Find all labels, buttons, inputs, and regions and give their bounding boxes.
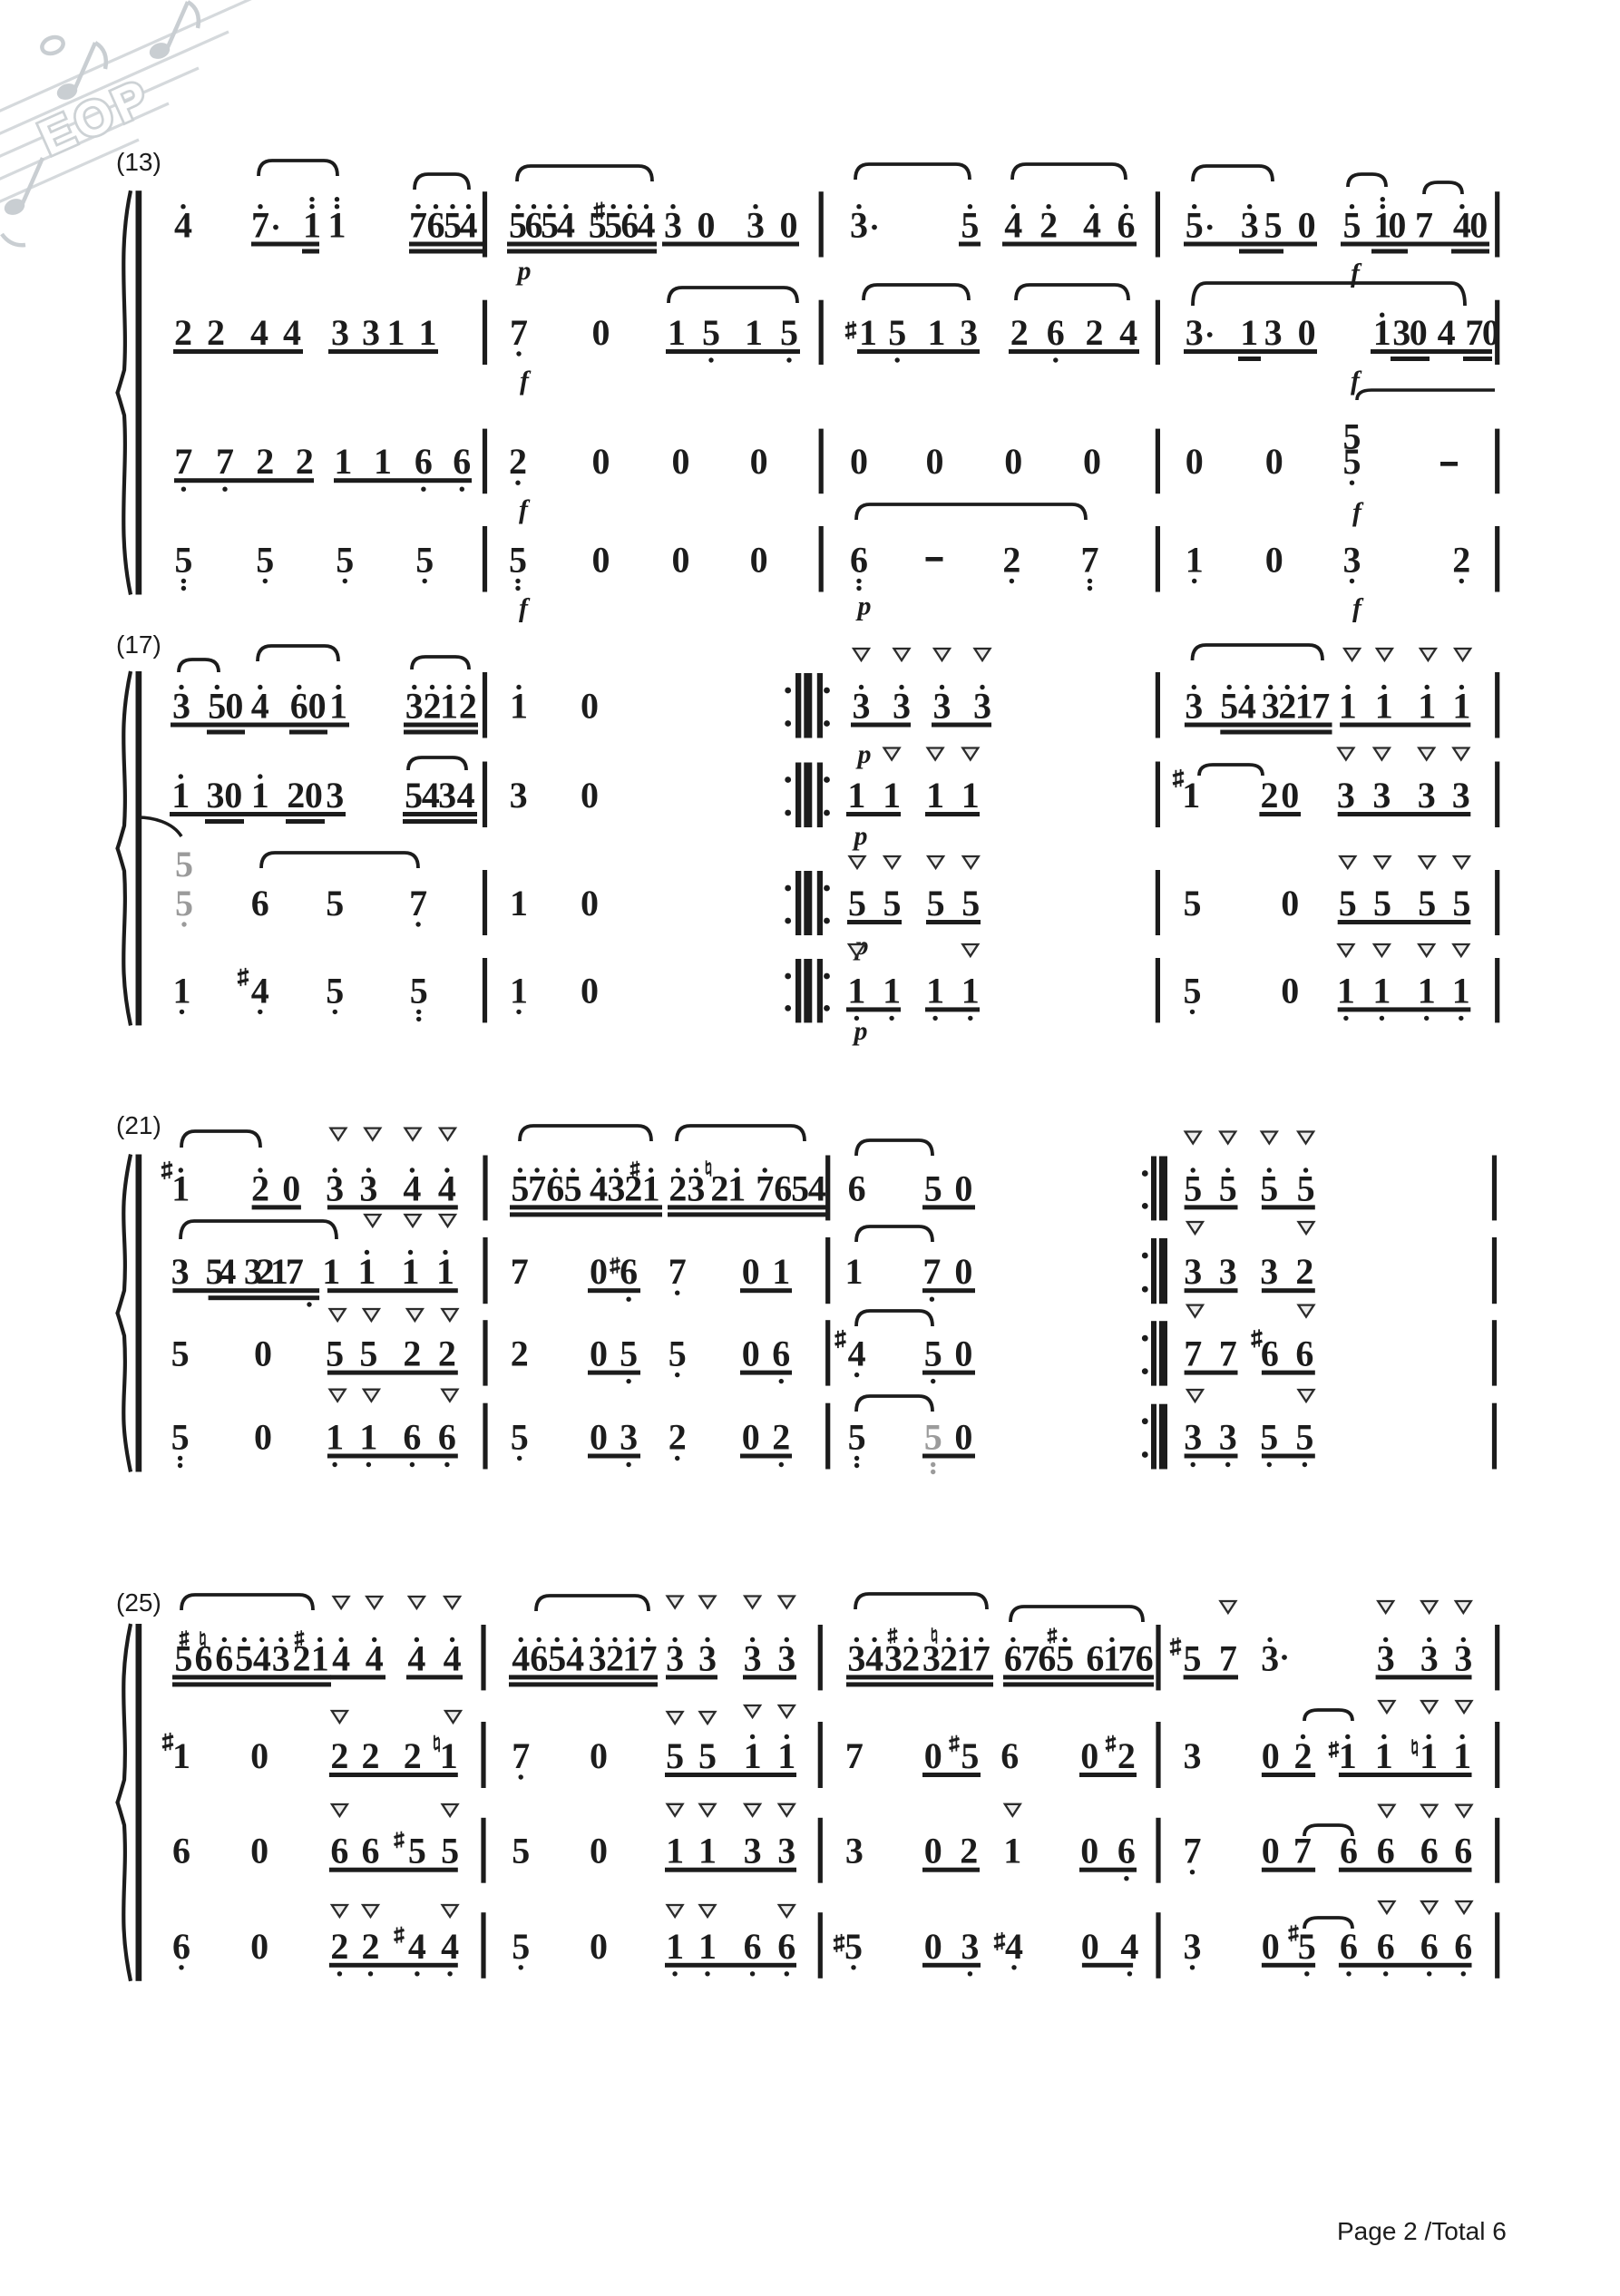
svg-text:5: 5 [848,1417,866,1458]
svg-text:1: 1 [1420,1735,1438,1776]
svg-text:2: 2 [330,1926,348,1967]
svg-text:5: 5 [359,1334,377,1374]
svg-text:0: 0 [1388,205,1406,246]
svg-text:7: 7 [1219,1334,1237,1374]
svg-text:3: 3 [326,1168,344,1208]
svg-text:7: 7 [1081,540,1099,581]
svg-text:0: 0 [254,1417,272,1458]
svg-text:4: 4 [808,1168,826,1208]
svg-text:4: 4 [865,1637,883,1678]
svg-text:3: 3 [1454,1637,1472,1678]
svg-text:1: 1 [642,1168,660,1208]
svg-text:3: 3 [664,205,682,246]
svg-text:3: 3 [589,1637,607,1678]
svg-text:6: 6 [427,205,445,246]
svg-text:2: 2 [256,441,274,482]
svg-text:0: 0 [1281,775,1299,816]
svg-text:3: 3 [1343,540,1361,581]
svg-text:0: 0 [672,540,690,581]
svg-text:1: 1 [777,1735,795,1776]
svg-text:2: 2 [960,1831,978,1871]
svg-text:6: 6 [453,441,471,482]
svg-text:6: 6 [215,1637,233,1678]
svg-text:1: 1 [961,775,980,816]
svg-text:3: 3 [1241,205,1259,246]
svg-text:0: 0 [305,775,323,816]
svg-text:1: 1 [666,1831,684,1871]
svg-text:0: 0 [592,441,610,482]
svg-text:2: 2 [668,1417,687,1458]
svg-text:3: 3 [1186,312,1204,353]
svg-text:6: 6 [1004,1637,1022,1678]
svg-text:1: 1 [1418,970,1436,1011]
svg-text:3: 3 [845,1831,864,1871]
svg-text:2: 2 [511,1334,529,1374]
svg-text:5: 5 [336,540,354,581]
svg-text:5: 5 [548,1637,566,1678]
svg-text:1: 1 [1186,540,1204,581]
svg-text:2: 2 [424,686,442,727]
svg-text:1: 1 [173,970,191,1011]
svg-text:5: 5 [1373,883,1391,923]
svg-text:5: 5 [1184,1637,1202,1678]
svg-text:1: 1 [171,775,190,816]
svg-text:2: 2 [1295,1251,1313,1292]
svg-text:3: 3 [1262,686,1280,727]
svg-text:5: 5 [1298,1926,1316,1967]
svg-text:1: 1 [510,686,528,727]
svg-text:6: 6 [1038,1637,1056,1678]
svg-text:5: 5 [924,1334,942,1374]
svg-text:0: 0 [581,775,599,816]
svg-text:1: 1 [171,1168,190,1208]
svg-text:5: 5 [541,205,559,246]
svg-text:4: 4 [174,205,192,246]
svg-text:0: 0 [282,1168,300,1208]
svg-text:0: 0 [1080,1735,1098,1776]
svg-text:6: 6 [1377,1831,1395,1871]
svg-text:6: 6 [1377,1926,1395,1967]
svg-text:7: 7 [510,312,528,353]
svg-text:5: 5 [326,970,344,1011]
svg-text:p: p [855,739,872,769]
svg-text:0: 0 [1083,441,1101,482]
svg-text:2: 2 [1002,540,1020,581]
svg-text:1: 1 [436,1251,454,1292]
svg-text:1: 1 [698,1831,717,1871]
svg-text:6: 6 [172,1926,190,1967]
svg-text:7: 7 [668,1251,687,1292]
svg-text:5: 5 [175,883,193,923]
svg-text:3: 3 [1420,1637,1439,1678]
svg-text:0: 0 [954,1168,972,1208]
svg-text:1: 1 [440,686,458,727]
svg-text:7: 7 [1312,686,1330,727]
svg-text:5: 5 [171,1334,190,1374]
svg-text:2: 2 [509,441,527,482]
svg-text:3: 3 [1377,1637,1395,1678]
svg-text:0: 0 [590,1926,608,1967]
svg-text:0: 0 [924,1926,942,1967]
svg-text:0: 0 [1265,441,1283,482]
svg-text:5: 5 [171,1417,190,1458]
svg-text:3: 3 [1264,312,1283,353]
svg-text:3: 3 [960,312,978,353]
svg-text:7: 7 [845,1735,864,1776]
svg-text:3: 3 [744,1831,762,1871]
svg-text:0: 0 [254,1334,272,1374]
svg-text:1: 1 [328,205,346,246]
svg-text:0: 0 [672,441,690,482]
svg-text:2: 2 [459,686,477,727]
svg-text:3: 3 [1452,775,1470,816]
svg-text:2: 2 [362,1926,380,1967]
svg-text:p: p [855,591,872,621]
svg-text:6: 6 [1295,1334,1313,1374]
svg-text:0: 0 [250,1831,268,1871]
svg-text:3: 3 [1261,1637,1279,1678]
svg-text:1: 1 [1003,1831,1021,1871]
svg-text:1: 1 [172,1735,190,1776]
svg-text:Page 2 /Total 6: Page 2 /Total 6 [1337,2217,1507,2245]
svg-text:2: 2 [1452,540,1470,581]
svg-text:2: 2 [772,1417,790,1458]
svg-text:3: 3 [698,1637,717,1678]
svg-text:(13): (13) [116,148,161,176]
svg-text:0: 0 [1410,312,1428,353]
svg-text:3: 3 [1219,1251,1237,1292]
svg-text:0: 0 [590,1334,608,1374]
svg-text:5: 5 [174,540,192,581]
svg-text:1: 1 [1452,686,1470,727]
svg-text:2: 2 [902,1637,920,1678]
svg-text:4: 4 [1083,205,1101,246]
svg-text:5: 5 [175,844,193,884]
svg-text:2: 2 [1117,1735,1136,1776]
svg-text:3: 3 [850,205,868,246]
svg-text:0: 0 [1262,1926,1280,1967]
svg-text:3: 3 [777,1637,795,1678]
svg-text:6: 6 [1420,1831,1439,1871]
svg-text:2: 2 [1294,1735,1313,1776]
svg-text:1: 1 [1240,312,1258,353]
svg-text:4: 4 [366,1637,384,1678]
svg-text:6: 6 [1454,1831,1472,1871]
svg-text:4: 4 [407,1637,425,1678]
svg-text:3: 3 [620,1417,638,1458]
svg-text:5: 5 [405,775,423,816]
svg-text:3: 3 [359,1168,377,1208]
svg-text:7: 7 [528,1168,546,1208]
svg-text:6: 6 [290,686,308,727]
svg-text:3: 3 [973,686,991,727]
svg-text:5: 5 [441,1831,459,1871]
svg-text:2: 2 [296,441,314,482]
svg-text:5: 5 [668,1334,687,1374]
svg-text:0: 0 [1081,1926,1099,1967]
svg-text:4: 4 [1120,1926,1138,1967]
svg-text:0: 0 [924,1831,942,1871]
svg-text:5: 5 [1056,1637,1074,1678]
svg-text:6: 6 [772,1334,790,1374]
svg-text:2: 2 [606,1637,624,1678]
svg-text:6: 6 [530,1637,548,1678]
svg-text:0: 0 [780,205,798,246]
svg-text:0: 0 [590,1251,608,1292]
svg-text:4: 4 [444,1637,462,1678]
svg-text:3: 3 [933,686,952,727]
svg-text:3: 3 [922,1637,941,1678]
svg-text:6: 6 [620,205,639,246]
svg-text:7: 7 [216,441,234,482]
svg-text:2: 2 [174,312,192,353]
svg-text:6: 6 [1340,1831,1358,1871]
svg-text:1: 1 [374,441,392,482]
svg-text:2: 2 [293,1637,311,1678]
svg-text:6: 6 [1261,1334,1279,1374]
svg-text:7: 7 [174,441,192,482]
svg-text:5: 5 [511,1168,529,1208]
svg-text:7: 7 [1415,205,1433,246]
svg-text:5: 5 [1264,205,1283,246]
svg-text:6: 6 [1117,205,1136,246]
svg-text:1: 1 [1452,970,1470,1011]
svg-text:5: 5 [961,1735,979,1776]
svg-text:3: 3 [1184,1735,1202,1776]
svg-text:7: 7 [409,883,427,923]
svg-text:1: 1 [440,1735,458,1776]
svg-text:3: 3 [744,1637,762,1678]
svg-text:6: 6 [438,1417,456,1458]
svg-text:3: 3 [331,312,349,353]
svg-text:2: 2 [940,1637,958,1678]
svg-text:5: 5 [256,540,274,581]
svg-text:4: 4 [557,205,575,246]
svg-text:1: 1 [666,1926,684,1967]
svg-text:1: 1 [510,883,528,923]
svg-text:2: 2 [362,1735,380,1776]
svg-text:5: 5 [927,883,945,923]
svg-text:6: 6 [1000,1735,1019,1776]
svg-text:3: 3 [1260,1251,1278,1292]
svg-text:1: 1 [329,686,347,727]
svg-text:4: 4 [590,1168,608,1208]
svg-text:0: 0 [850,441,868,482]
svg-text:6: 6 [415,441,433,482]
svg-text:5: 5 [208,686,226,727]
svg-text:0: 0 [924,1735,942,1776]
svg-text:1: 1 [928,312,946,353]
svg-text:3: 3 [172,686,190,727]
svg-text:1: 1 [1182,775,1200,816]
svg-text:5: 5 [410,970,428,1011]
svg-text:3: 3 [666,1637,684,1678]
svg-text:1: 1 [1295,686,1313,727]
svg-text:2: 2 [438,1334,456,1374]
svg-text:1: 1 [251,775,269,816]
svg-text:5: 5 [848,883,866,923]
svg-text:6: 6 [1420,1926,1439,1967]
svg-text:5: 5 [408,1831,426,1871]
svg-text:7: 7 [409,205,427,246]
svg-text:0: 0 [954,1334,972,1374]
svg-text:3: 3 [362,312,380,353]
svg-text:0: 0 [308,686,327,727]
svg-text:3: 3 [1372,775,1391,816]
svg-text:3: 3 [893,686,911,727]
svg-text:0: 0 [581,686,599,727]
svg-text:1: 1 [727,1168,746,1208]
svg-text:4: 4 [332,1637,350,1678]
svg-text:4: 4 [638,205,656,246]
svg-text:7: 7 [756,1168,774,1208]
svg-text:1: 1 [961,970,980,1011]
svg-text:2: 2 [668,1168,687,1208]
svg-text:5: 5 [1184,883,1202,923]
svg-text:6: 6 [1136,1637,1154,1678]
svg-text:0: 0 [926,441,944,482]
svg-text:0: 0 [1262,1831,1280,1871]
svg-text:1: 1 [698,1926,717,1967]
svg-text:5: 5 [1184,970,1202,1011]
svg-text:4: 4 [250,312,268,353]
svg-text:4: 4 [283,312,301,353]
svg-text:0: 0 [1262,1735,1280,1776]
svg-text:1: 1 [859,312,877,353]
svg-text:3: 3 [777,1831,795,1871]
svg-text:5: 5 [702,312,720,353]
svg-text:1: 1 [1453,1735,1471,1776]
svg-text:1: 1 [1337,970,1355,1011]
svg-text:4: 4 [1453,205,1471,246]
svg-text:7: 7 [1021,1637,1039,1678]
svg-text:5: 5 [620,1334,638,1374]
svg-text:3: 3 [961,1926,979,1967]
svg-text:4: 4 [441,1926,459,1967]
svg-text:5: 5 [1219,1168,1237,1208]
svg-text:6: 6 [1340,1926,1358,1967]
svg-text:0: 0 [954,1417,972,1458]
svg-text:0: 0 [250,1926,268,1967]
svg-text:1: 1 [845,1251,864,1292]
svg-text:3: 3 [171,1251,190,1292]
svg-text:6: 6 [172,1831,190,1871]
svg-text:5: 5 [326,1334,344,1374]
svg-text:1: 1 [668,312,686,353]
svg-text:0: 0 [581,970,599,1011]
svg-text:0: 0 [1281,970,1299,1011]
svg-text:0: 0 [1469,205,1488,246]
svg-text:5: 5 [888,312,906,353]
svg-text:1: 1 [1373,312,1391,353]
svg-text:7: 7 [922,1251,941,1292]
svg-text:1: 1 [622,1637,640,1678]
svg-text:7: 7 [1293,1831,1312,1871]
svg-text:0: 0 [250,1735,268,1776]
svg-text:0: 0 [1298,312,1316,353]
svg-text:4: 4 [422,775,440,816]
svg-text:1: 1 [311,1637,329,1678]
svg-text:5: 5 [844,1926,863,1967]
svg-text:7: 7 [1219,1637,1237,1678]
svg-text:7: 7 [1184,1334,1202,1374]
svg-text:3: 3 [853,686,871,727]
svg-text:1: 1 [1339,1735,1357,1776]
svg-text:3: 3 [1184,1417,1202,1458]
svg-text:7: 7 [639,1637,658,1678]
svg-text:5: 5 [604,205,622,246]
svg-text:1: 1 [744,1735,762,1776]
svg-text:5: 5 [666,1735,684,1776]
svg-text:2: 2 [251,1168,269,1208]
svg-text:5: 5 [1418,883,1436,923]
svg-text:(17): (17) [116,630,161,659]
svg-text:1: 1 [322,1251,340,1292]
svg-text:5: 5 [961,883,980,923]
svg-text:5: 5 [564,1168,582,1208]
svg-text:4: 4 [438,1168,456,1208]
svg-text:3: 3 [847,1637,865,1678]
svg-text:3: 3 [326,775,344,816]
svg-text:3: 3 [884,1637,903,1678]
svg-text:1: 1 [1418,686,1436,727]
svg-text:0: 0 [954,1251,972,1292]
svg-text:5: 5 [1260,1417,1278,1458]
svg-text:0: 0 [1265,540,1283,581]
svg-text:1: 1 [303,205,321,246]
svg-text:4: 4 [408,1926,426,1967]
svg-text:6: 6 [403,1417,421,1458]
svg-text:0: 0 [742,1417,760,1458]
svg-text:7: 7 [511,1251,529,1292]
svg-text:3: 3 [510,775,528,816]
svg-text:1: 1 [402,1251,420,1292]
svg-text:4: 4 [251,970,269,1011]
svg-text:5: 5 [1339,883,1357,923]
svg-text:1: 1 [847,970,865,1011]
svg-text:5: 5 [326,883,344,923]
svg-text:7: 7 [251,205,269,246]
svg-text:7: 7 [1184,1831,1202,1871]
svg-text:6: 6 [850,540,868,581]
svg-text:1: 1 [772,1251,790,1292]
svg-text:4: 4 [403,1168,421,1208]
svg-text:3: 3 [405,686,424,727]
svg-text:6: 6 [362,1831,380,1871]
svg-text:5: 5 [961,205,979,246]
svg-text:2: 2 [403,1334,421,1374]
svg-text:0: 0 [750,441,768,482]
svg-text:6: 6 [251,883,269,923]
svg-text:0: 0 [590,1831,608,1871]
svg-text:5: 5 [924,1417,942,1458]
svg-text:5: 5 [512,1831,530,1871]
svg-text:1: 1 [745,312,763,353]
svg-text:2: 2 [330,1735,348,1776]
svg-text:1: 1 [926,970,944,1011]
svg-text:2: 2 [287,775,305,816]
svg-text:2: 2 [1278,686,1296,727]
svg-text:6: 6 [1454,1926,1472,1967]
svg-text:0: 0 [592,540,610,581]
svg-text:5: 5 [883,883,902,923]
svg-text:5: 5 [235,1637,253,1678]
svg-text:1: 1 [1375,686,1393,727]
svg-text:5: 5 [1297,1168,1315,1208]
svg-text:5: 5 [1452,883,1470,923]
svg-text:0: 0 [590,1417,608,1458]
svg-text:5: 5 [1343,441,1361,482]
